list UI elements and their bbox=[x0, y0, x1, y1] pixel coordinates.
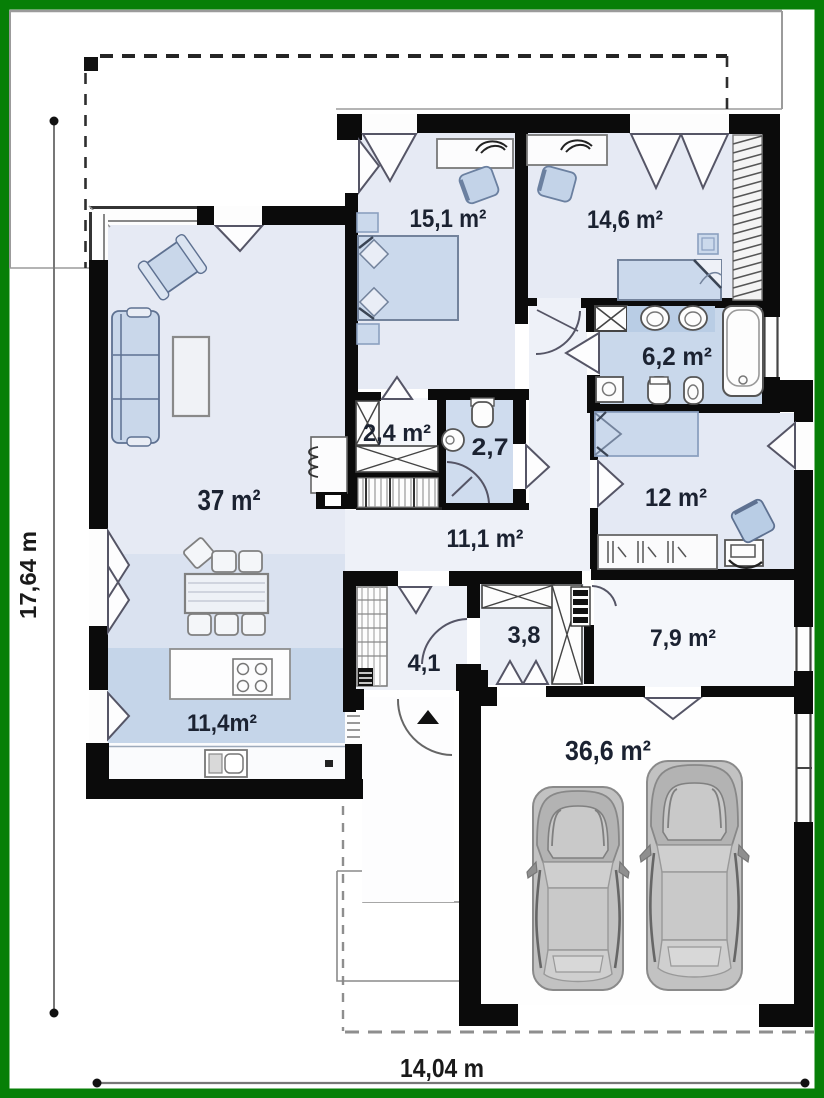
svg-text:3,8: 3,8 bbox=[508, 622, 541, 649]
svg-text:36,6 m²: 36,6 m² bbox=[565, 735, 651, 766]
svg-text:15,1 m²: 15,1 m² bbox=[410, 205, 487, 233]
svg-text:4,1: 4,1 bbox=[408, 650, 441, 677]
svg-text:14,6 m²: 14,6 m² bbox=[587, 206, 663, 234]
svg-text:2,4 m²: 2,4 m² bbox=[363, 420, 431, 447]
svg-text:37 m²: 37 m² bbox=[198, 485, 261, 517]
svg-text:2,7: 2,7 bbox=[472, 434, 509, 461]
svg-text:14,04 m: 14,04 m bbox=[400, 1053, 484, 1083]
svg-text:11,1 m²: 11,1 m² bbox=[447, 525, 524, 553]
svg-text:12 m²: 12 m² bbox=[645, 484, 707, 512]
svg-text:6,2 m²: 6,2 m² bbox=[642, 343, 712, 371]
svg-text:11,4m²: 11,4m² bbox=[187, 710, 257, 737]
svg-text:17,64 m: 17,64 m bbox=[15, 531, 41, 619]
svg-text:7,9 m²: 7,9 m² bbox=[650, 625, 716, 652]
